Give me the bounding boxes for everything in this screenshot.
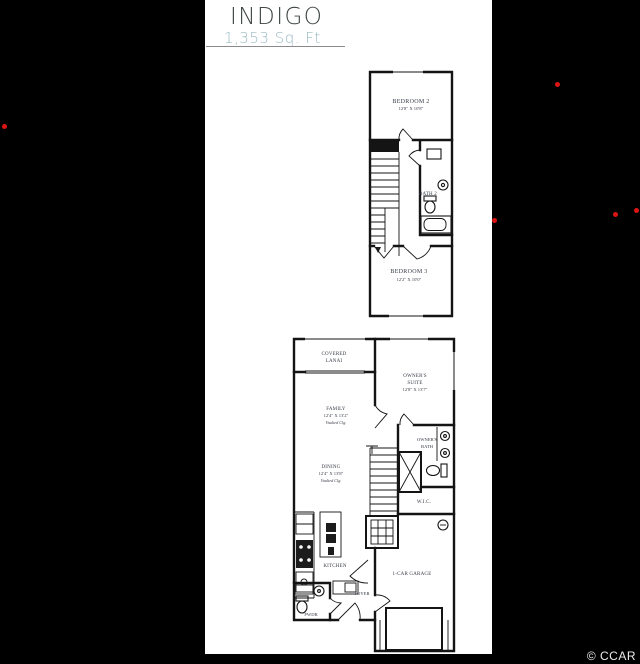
room-dims-suite: 12'8" X 13'7" xyxy=(403,387,428,392)
room-label-garage: 1-CAR GARAGE xyxy=(393,572,432,577)
room-label-lanai-1: COVERED xyxy=(321,352,346,357)
garage-entry-door-swing xyxy=(375,595,390,612)
room-dims-bedroom2: 12'8" X 10'8" xyxy=(399,106,424,111)
red-marker-dot-2 xyxy=(555,82,560,87)
lanai-slider xyxy=(305,371,365,373)
front-door-swing xyxy=(338,603,360,620)
island-sink-1 xyxy=(326,523,336,532)
room-note-family: Vaulted Clg. xyxy=(326,420,347,425)
kitchen-hall-door-swing xyxy=(350,560,368,583)
red-marker-dot-1 xyxy=(2,124,7,129)
room-label-dining: DINING xyxy=(322,465,341,470)
burner-1 xyxy=(299,545,303,549)
room-label-family: FAMILY xyxy=(326,407,346,412)
garage-door-jambs xyxy=(380,620,448,650)
vanity-sink-drain-2 xyxy=(444,452,447,455)
bedroom2-door-swing xyxy=(399,129,413,140)
room-label-foyer: FOYER xyxy=(354,591,370,596)
room-label-pwdr: PWDR xyxy=(304,612,318,617)
room-label-bedroom3: BEDROOM 3 xyxy=(390,269,427,275)
floor1-window-mask xyxy=(305,339,454,390)
red-marker-dot-3 xyxy=(492,218,497,223)
room-dims-bedroom3: 12'2" X 10'0" xyxy=(397,277,422,282)
water-heater xyxy=(371,520,393,544)
water-heater-grid xyxy=(371,520,393,544)
bath2-sink-icon xyxy=(438,180,448,190)
room-label-bath2: BATH 2 xyxy=(419,192,437,197)
owners-toilet-bowl xyxy=(427,466,440,476)
room-label-lanai-2: LANAI xyxy=(326,359,343,364)
room-label-owners-bath-1: OWNER'S xyxy=(417,437,438,442)
screenshot-canvas: INDIGO 1,353 Sq. Ft xyxy=(0,0,640,664)
stairs-handrail-mark xyxy=(366,446,378,454)
vanity-sink-icon-1 xyxy=(441,432,450,441)
room-note-dining: Vaulted Clg. xyxy=(321,478,342,483)
pwdr-sink-icon xyxy=(314,586,324,596)
bedroom3-door-swing xyxy=(403,246,431,259)
red-marker-dot-4 xyxy=(613,212,618,217)
bath2-shelf xyxy=(427,149,441,159)
pwdr-sink-drain xyxy=(318,590,321,593)
first-floor-plan: COVERED LANAI OWNER'S SUITE 12'8" X 13'7… xyxy=(294,339,454,651)
burner-3 xyxy=(299,558,303,562)
room-label-bedroom2: BEDROOM 2 xyxy=(392,99,429,105)
second-floor-plan: BEDROOM 2 12'8" X 10'8" BATH 2 BEDROOM 3… xyxy=(370,72,452,316)
island-fixture xyxy=(328,547,334,555)
vanity-sink-icon-2 xyxy=(441,449,450,458)
owners-toilet-tank xyxy=(441,464,447,477)
room-label-suite-1: OWNER'S xyxy=(403,374,426,379)
garage-door xyxy=(386,608,442,650)
stove-icon xyxy=(296,540,313,568)
vanity-sink-drain-1 xyxy=(444,435,447,438)
floor2-stairs-treads xyxy=(371,152,399,256)
bath2-sink-drain xyxy=(441,183,444,186)
bath2-tub-basin xyxy=(424,219,446,231)
room-label-owners-bath-2: BATH xyxy=(421,444,434,449)
red-marker-dot-5 xyxy=(634,208,639,213)
floorplan-drawing: BEDROOM 2 12'8" X 10'8" BATH 2 BEDROOM 3… xyxy=(0,0,640,664)
floor1-stairs-treads xyxy=(370,448,398,516)
room-label-wic: W.I.C. xyxy=(417,500,431,505)
room-label-kitchen: KITCHEN xyxy=(323,564,347,569)
burner-4 xyxy=(307,558,311,562)
floor1-windows xyxy=(305,339,454,390)
room-label-suite-2: SUITE xyxy=(407,381,422,386)
pwdr-door-swing xyxy=(330,598,341,614)
bath-door-swing xyxy=(400,414,414,425)
stair-landing-fill xyxy=(371,141,399,152)
room-dims-family: 12'4" X 13'2" xyxy=(324,413,349,418)
ccar-watermark: © CCAR xyxy=(587,649,636,663)
bath2-door-swing xyxy=(409,150,420,166)
suite-door-swing xyxy=(375,405,387,428)
pwdr-toilet-tank xyxy=(296,596,308,601)
island-sink-2 xyxy=(326,534,336,543)
room-dims-dining: 12'4" X 13'8" xyxy=(319,471,344,476)
burner-2 xyxy=(307,545,311,549)
shower-glass-x xyxy=(399,452,421,492)
pwdr-vanity xyxy=(295,585,313,594)
bath2-toilet-bowl xyxy=(425,201,435,213)
